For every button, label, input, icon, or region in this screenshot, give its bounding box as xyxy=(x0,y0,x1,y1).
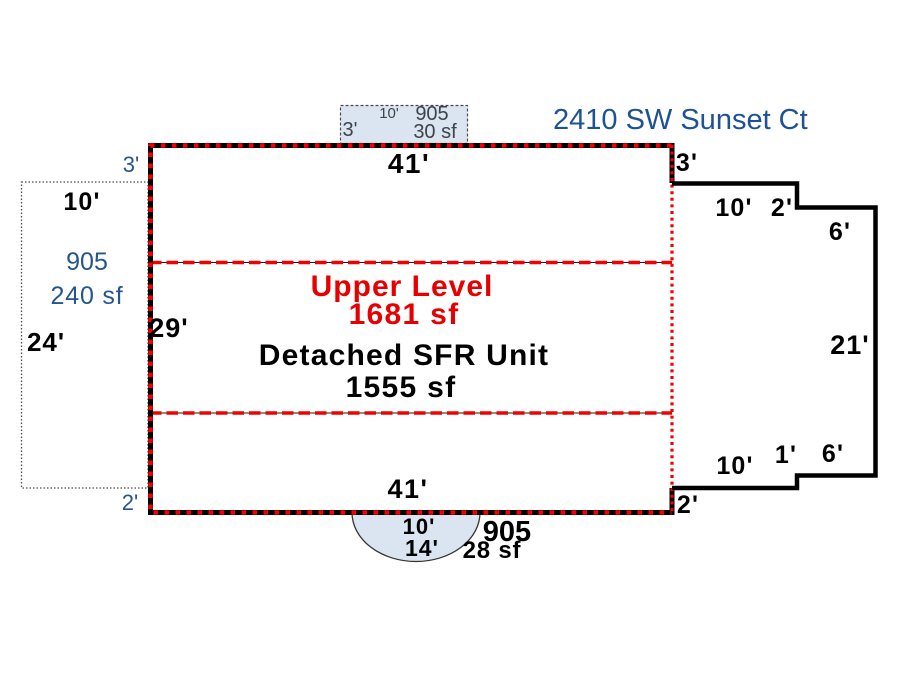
svg-text:2': 2' xyxy=(677,491,699,519)
svg-text:1681 sf: 1681 sf xyxy=(349,298,460,331)
svg-text:29': 29' xyxy=(149,313,188,343)
svg-text:1555 sf: 1555 sf xyxy=(346,371,457,404)
svg-text:3': 3' xyxy=(123,152,139,177)
svg-text:41': 41' xyxy=(388,148,430,179)
svg-text:2410 SW Sunset Ct: 2410 SW Sunset Ct xyxy=(553,104,808,136)
svg-text:30 sf: 30 sf xyxy=(413,121,457,143)
svg-text:10': 10' xyxy=(379,105,399,122)
svg-text:10': 10' xyxy=(63,188,100,216)
svg-text:21': 21' xyxy=(830,330,869,360)
svg-text:10': 10' xyxy=(716,452,753,480)
svg-text:240 sf: 240 sf xyxy=(51,282,124,310)
svg-text:10': 10' xyxy=(715,194,752,222)
svg-text:2': 2' xyxy=(771,194,793,222)
svg-text:28 sf: 28 sf xyxy=(463,537,522,564)
svg-text:905: 905 xyxy=(66,248,108,276)
svg-text:6': 6' xyxy=(822,440,844,468)
svg-text:24': 24' xyxy=(27,327,65,357)
svg-text:6': 6' xyxy=(829,218,851,246)
svg-text:3': 3' xyxy=(343,119,358,141)
svg-text:1': 1' xyxy=(775,441,797,469)
svg-text:Detached SFR Unit: Detached SFR Unit xyxy=(259,339,549,372)
svg-text:3': 3' xyxy=(676,149,698,177)
svg-text:2': 2' xyxy=(122,490,138,515)
svg-text:14': 14' xyxy=(405,535,439,561)
svg-text:41': 41' xyxy=(388,474,429,504)
